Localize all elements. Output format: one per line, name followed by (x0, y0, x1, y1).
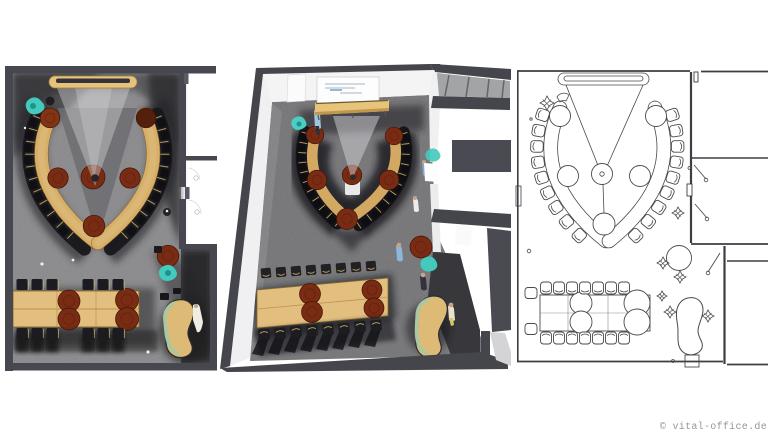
svg-text:© vital-office.de: © vital-office.de (660, 421, 767, 432)
